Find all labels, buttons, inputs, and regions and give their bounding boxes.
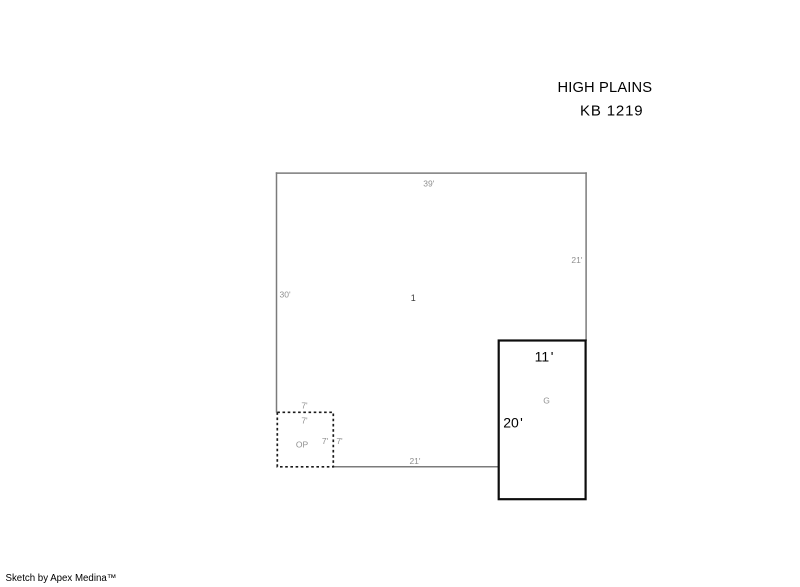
- svg-text:39': 39': [423, 179, 434, 189]
- svg-text:1: 1: [411, 293, 416, 303]
- svg-text:KB 1219: KB 1219: [580, 103, 644, 120]
- svg-text:7': 7': [336, 436, 343, 446]
- svg-text:30': 30': [280, 290, 291, 300]
- svg-text:HIGH PLAINS: HIGH PLAINS: [558, 80, 653, 96]
- svg-text:Sketch by Apex Medina™: Sketch by Apex Medina™: [6, 573, 117, 584]
- svg-text:20': 20': [503, 414, 523, 430]
- svg-text:21': 21': [409, 456, 420, 466]
- svg-text:21': 21': [571, 255, 582, 265]
- svg-text:G: G: [543, 396, 550, 406]
- svg-text:7': 7': [301, 401, 308, 411]
- svg-text:OP: OP: [296, 440, 309, 450]
- svg-text:7': 7': [322, 436, 329, 446]
- svg-text:11': 11': [535, 348, 554, 364]
- svg-text:7': 7': [301, 415, 308, 425]
